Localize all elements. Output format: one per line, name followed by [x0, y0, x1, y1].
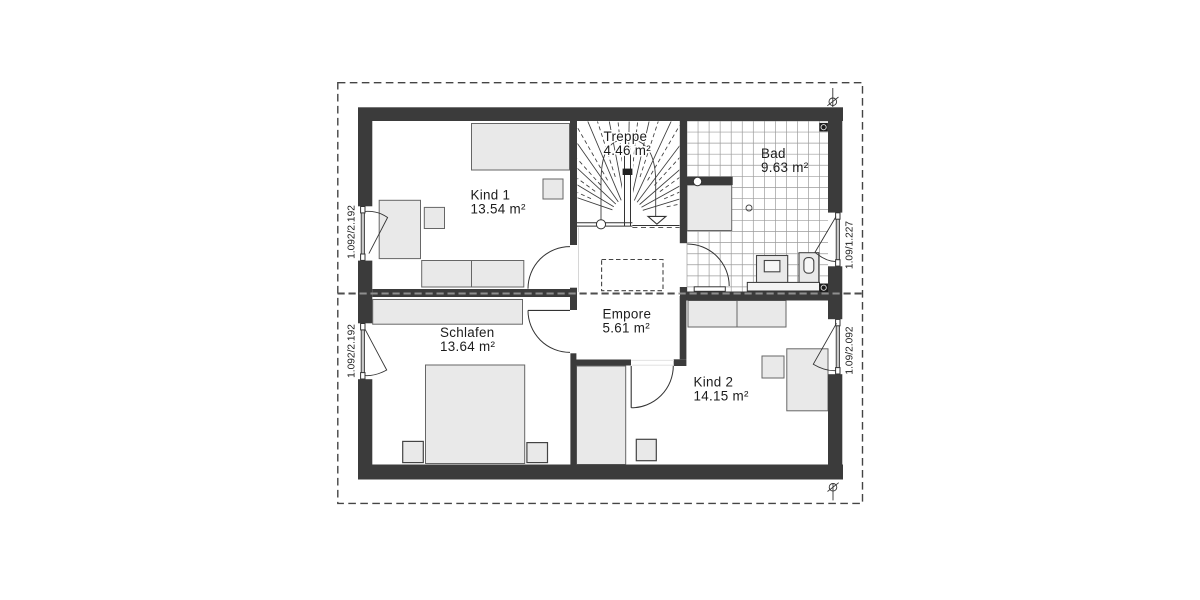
svg-text:13.54 m²: 13.54 m²	[471, 202, 526, 217]
svg-text:Empore: Empore	[603, 307, 652, 322]
svg-text:13.64 m²: 13.64 m²	[440, 339, 495, 354]
svg-text:5.61 m²: 5.61 m²	[603, 321, 651, 336]
svg-text:1.09/1.227: 1.09/1.227	[845, 221, 856, 269]
svg-text:Treppe: Treppe	[604, 129, 648, 144]
svg-text:Schlafen: Schlafen	[440, 325, 495, 340]
svg-text:Kind 1: Kind 1	[471, 188, 511, 203]
svg-text:14.15 m²: 14.15 m²	[694, 389, 749, 404]
svg-text:1.09/2.092: 1.09/2.092	[845, 326, 856, 374]
svg-text:4.46 m²: 4.46 m²	[604, 143, 652, 158]
svg-text:1.092/2.192: 1.092/2.192	[347, 205, 358, 259]
svg-text:1.092/2.192: 1.092/2.192	[347, 324, 358, 378]
svg-text:9.63 m²: 9.63 m²	[761, 160, 809, 175]
svg-text:Kind 2: Kind 2	[694, 375, 734, 390]
svg-text:Bad: Bad	[761, 146, 786, 161]
